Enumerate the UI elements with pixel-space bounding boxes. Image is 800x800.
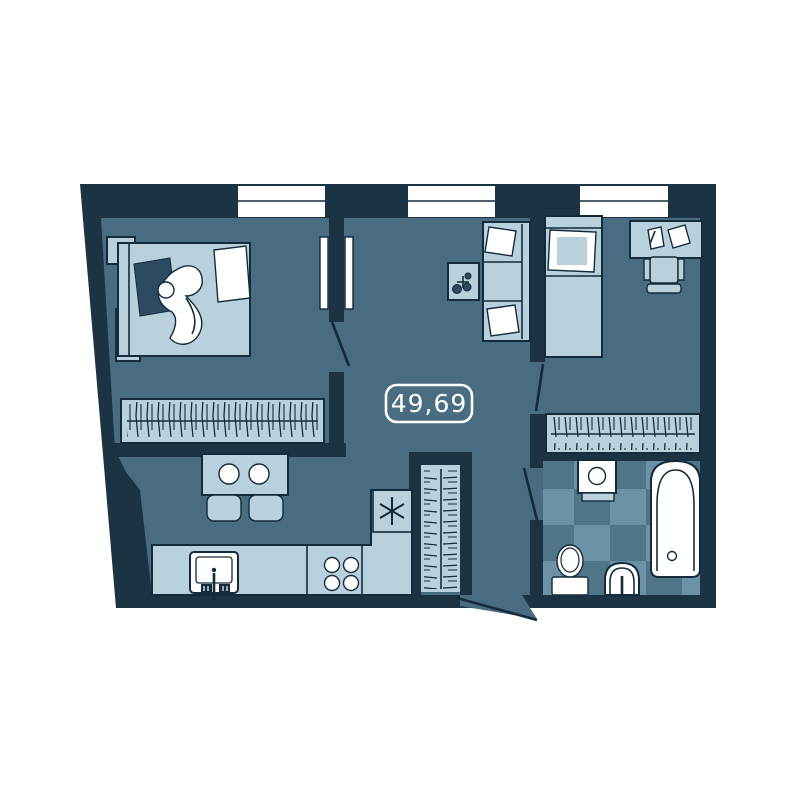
dining-table (202, 454, 288, 495)
area-label: 49,69 (386, 385, 472, 422)
dining-chair (207, 495, 241, 521)
kitchen-sink (190, 552, 238, 600)
desk-chair (644, 257, 684, 293)
wall-bathroom-left-lower (530, 520, 543, 595)
plate (249, 464, 269, 484)
window-bedroom-left (238, 186, 325, 217)
floor-plan-page: 49,69 (0, 0, 800, 800)
single-bed (545, 216, 602, 357)
window-bedroom-right (580, 186, 668, 217)
wall-bedroom-right-upper (530, 218, 545, 362)
drain-icon (668, 552, 677, 561)
wardrobe-bedroom-right (546, 414, 700, 453)
desk (630, 221, 702, 258)
washing-machine (578, 460, 616, 501)
window-living (408, 186, 495, 217)
side-table (448, 263, 479, 300)
wash-basin (605, 563, 639, 595)
area-value: 49,69 (391, 389, 468, 418)
cup-icon (465, 273, 471, 279)
wall-bedroom-left-lower (329, 372, 344, 443)
bathtub (651, 461, 700, 577)
wall-bathroom-left-upper (530, 455, 543, 468)
washer-drum-icon (589, 468, 606, 485)
wall-hall-closet-right (460, 452, 472, 595)
person-head (158, 282, 174, 298)
dining-chair (249, 495, 283, 521)
windows (238, 186, 668, 217)
cup-icon (453, 285, 462, 294)
bathroom (543, 460, 700, 595)
wall-bedroom-left-upper (329, 218, 344, 322)
hall-closet (421, 465, 460, 592)
white-pillow (214, 246, 250, 302)
cup-icon (463, 283, 471, 291)
sofa-pillow-bottom (487, 305, 519, 336)
sofa-pillow-top (485, 227, 516, 256)
sofa (483, 222, 530, 341)
floor-plan: 49,69 (0, 0, 800, 800)
paper (648, 227, 664, 249)
wall-bedroom-right-stub (530, 414, 545, 455)
plate (219, 464, 239, 484)
wardrobe-bedroom-left (121, 399, 324, 443)
